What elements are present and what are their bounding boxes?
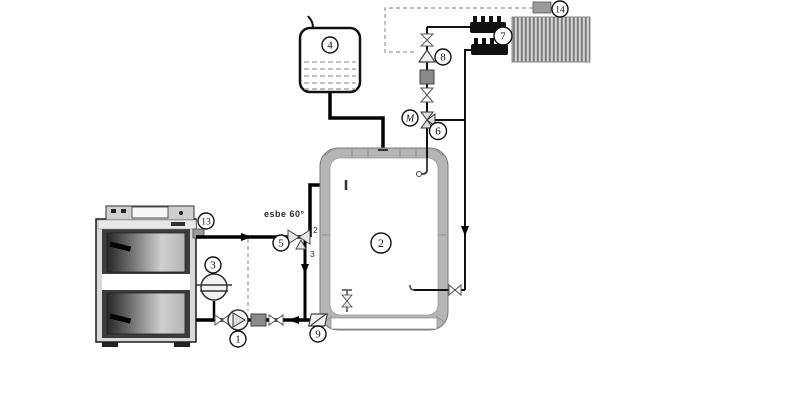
boiler-mid-band: [102, 274, 190, 290]
callout-expansion-vessel: 3: [205, 257, 221, 273]
callout-label: 14: [555, 6, 565, 16]
callout-label: 2: [378, 236, 384, 250]
thermic-valve-body: [288, 230, 310, 244]
riser-gate-valve-upper: [421, 34, 433, 46]
return-gate-valve-right: [269, 315, 283, 325]
manifold-tooth: [489, 16, 493, 22]
callout-buffer-tank: 2: [371, 233, 391, 253]
callout-mixing-valve: 6: [430, 123, 447, 140]
schematic-drawing: esbe 60° 2 3 1 2 3 4 5 6 7: [0, 0, 800, 415]
callout-label: 13: [201, 218, 211, 228]
manifold-tooth: [481, 16, 485, 22]
heating-distribution: [470, 2, 590, 62]
room-thermostat-box: [533, 2, 551, 13]
panel-button: [111, 209, 116, 213]
panel-button: [121, 209, 126, 213]
callout-label: 5: [278, 238, 284, 250]
callout-label: 1: [235, 334, 241, 346]
callout-zone-valve: 8: [435, 49, 451, 65]
manifold-tooth: [474, 38, 478, 44]
heating-return-drop: [465, 50, 471, 290]
open-expansion-tank: [300, 16, 360, 92]
control-display: [132, 207, 168, 218]
radiator: [512, 17, 590, 62]
callout-label: 9: [315, 329, 321, 341]
zone-valve-body: [419, 50, 435, 62]
callout-check-valve: 9: [310, 326, 326, 342]
heating-schematic: esbe 60° 2 3 1 2 3 4 5 6 7: [0, 0, 800, 415]
return-gate-valve-left: [215, 315, 229, 325]
boiler-foot: [102, 342, 118, 347]
boiler-lower-door: [107, 293, 185, 334]
callout-label: 4: [327, 40, 333, 52]
return-flow-arrow: [288, 316, 299, 324]
riser-gate-valve-lower: [421, 88, 433, 102]
thermic-valve-setpoint-label: esbe 60°: [264, 209, 305, 219]
panel-knob: [179, 211, 183, 215]
boiler-top-vent: [171, 222, 185, 226]
manifold-tooth: [490, 38, 494, 44]
manifold-tooth: [482, 38, 486, 44]
bypass-flow-arrow: [301, 264, 309, 274]
tank-base: [331, 318, 437, 329]
callout-boiler-thermostat: 13: [198, 213, 214, 229]
manifold-tooth: [497, 16, 501, 22]
vent-stub: [308, 16, 313, 28]
callout-mixing-valve-motor: M: [402, 110, 418, 126]
callout-radiator-circuit: 7: [494, 27, 512, 45]
heating-pump: [420, 70, 434, 84]
callout-label: 3: [210, 260, 216, 272]
callout-label: 7: [500, 31, 506, 43]
callout-thermic-valve: 5: [273, 235, 289, 251]
thermic-valve-port2-label: 2: [313, 225, 318, 235]
boiler: [96, 206, 204, 347]
callout-label: M: [405, 114, 415, 125]
thermic-valve-port3-label: 3: [310, 249, 315, 259]
tank-return-valve: [449, 285, 461, 295]
strainer-filter: [251, 314, 266, 326]
boiler-upper-door: [107, 233, 185, 272]
boiler-foot: [174, 342, 190, 347]
callout-room-thermostat: 14: [552, 1, 568, 17]
callout-label: 8: [440, 52, 446, 64]
manifold-tooth: [473, 16, 477, 22]
callout-boiler-pump: 1: [230, 331, 246, 347]
thermostat-control-wire: [385, 8, 533, 52]
heating-return-arrow: [461, 226, 469, 236]
supply-flow-arrow: [241, 233, 252, 241]
callout-open-expansion-tank: 4: [322, 37, 338, 53]
expansion-vessel-body: [201, 274, 227, 300]
callout-label: 6: [435, 126, 441, 138]
